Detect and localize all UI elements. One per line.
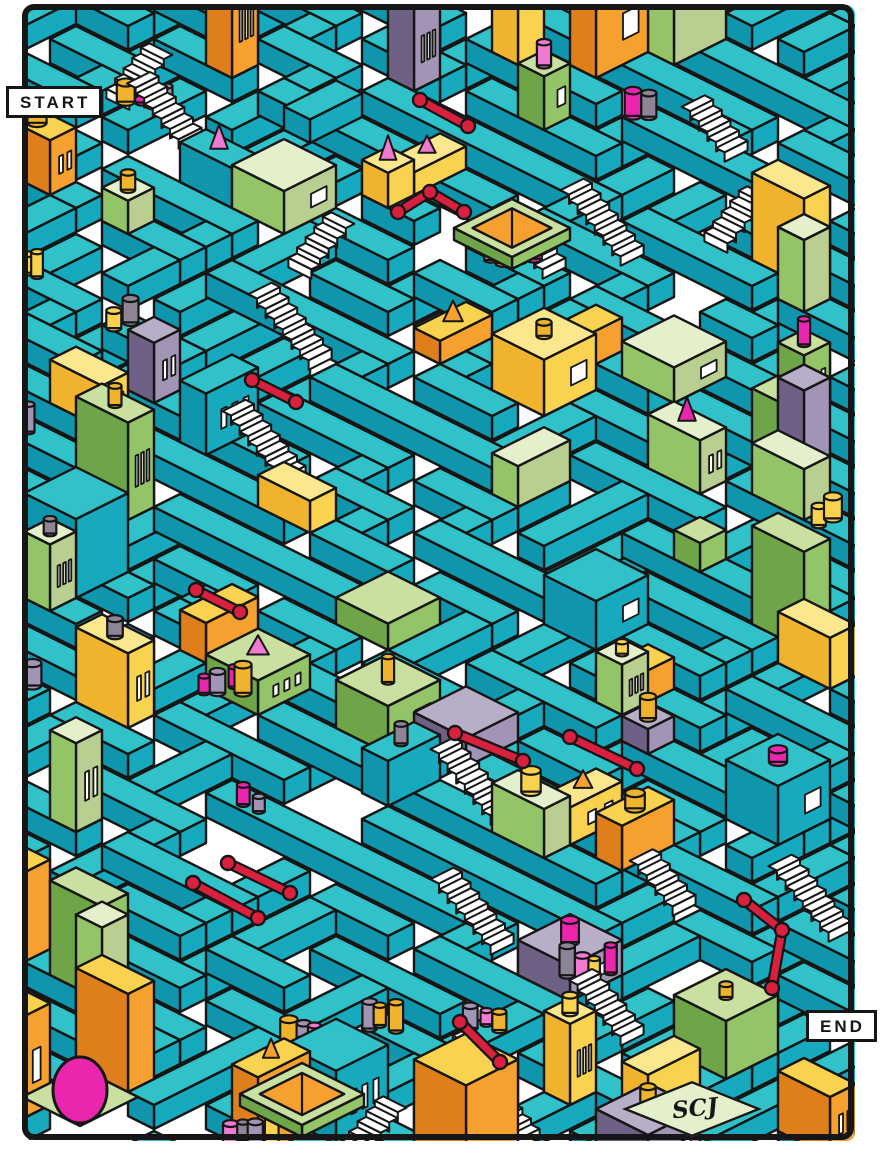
building <box>674 517 726 572</box>
cylinder-cluster <box>0 654 41 695</box>
wall-block <box>856 234 880 297</box>
building <box>0 990 50 1131</box>
start-label: START <box>6 86 102 118</box>
building <box>544 992 596 1105</box>
wall-block <box>0 429 24 492</box>
wall-block <box>856 871 880 921</box>
building <box>50 717 102 832</box>
building <box>24 516 76 611</box>
wall-block <box>0 1144 102 1158</box>
cylinder-cluster <box>0 399 35 435</box>
building <box>778 214 830 312</box>
wall-block <box>0 585 24 648</box>
building <box>388 0 440 91</box>
building <box>414 1033 518 1158</box>
cylinder-cluster <box>362 998 403 1033</box>
wall-block <box>0 377 24 440</box>
wall-block <box>830 1144 880 1158</box>
wall-block <box>102 1144 206 1158</box>
cylinder-cluster <box>0 249 43 281</box>
maze-art <box>0 0 880 1158</box>
wall-block <box>856 923 880 973</box>
wall-block <box>726 1144 856 1158</box>
building <box>206 0 258 78</box>
end-label: END <box>806 1010 877 1042</box>
wall-block <box>856 351 880 401</box>
artist-signature: SCJ <box>633 1076 757 1146</box>
wall-block <box>856 702 880 765</box>
maze-canvas <box>0 0 880 1158</box>
wall-block <box>206 1144 362 1158</box>
wall-block <box>0 637 24 700</box>
wall-block <box>0 481 24 544</box>
maze-illustration: START END SCJ <box>0 0 880 1158</box>
wall-block <box>128 1131 180 1158</box>
wall-block <box>0 533 24 596</box>
building <box>128 317 180 403</box>
wall-block <box>856 1131 880 1158</box>
cylinder-cluster <box>625 87 657 120</box>
wall-block <box>0 793 24 856</box>
